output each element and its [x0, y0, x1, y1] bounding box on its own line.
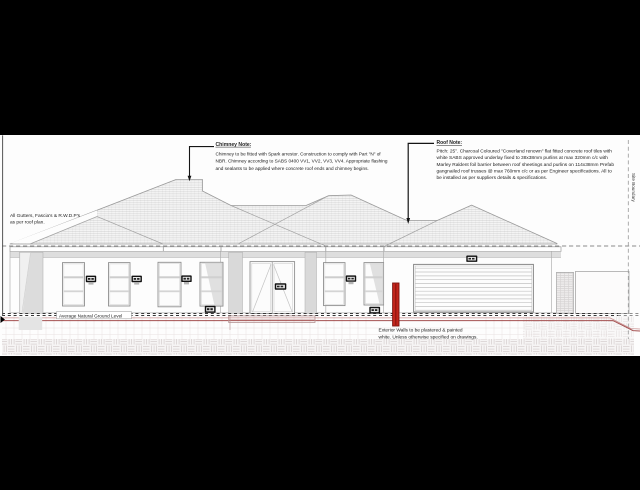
- svg-text:Exterior Walls to be plastered: Exterior Walls to be plastered & painted: [379, 327, 463, 333]
- svg-text:white SABS approved underlay f: white SABS approved underlay fixed to 38…: [437, 155, 609, 161]
- svg-text:Site Boundary: Site Boundary: [631, 173, 636, 203]
- svg-text:NBR. Chimney according to SABS: NBR. Chimney according to SABS 0400 VV1,…: [216, 159, 388, 164]
- svg-text:gangnailed roof trusses @ max: gangnailed roof trusses @ max 760mm c/c …: [437, 169, 613, 175]
- svg-text:All Gutters, Fascia's & R.W.D.: All Gutters, Fascia's & R.W.D.P's: [10, 213, 81, 219]
- svg-text:Chimney to be fitted with Spar: Chimney to be fitted with Spark arrestor…: [216, 151, 382, 156]
- svg-text:be installed as per suppliers: be installed as per suppliers details & …: [437, 175, 548, 181]
- svg-text:white. Unless otherwise specif: white. Unless otherwise specified on dra…: [379, 334, 478, 340]
- svg-text:Marley Raldent foil barrier be: Marley Raldent foil barrier between roof…: [437, 162, 615, 168]
- svg-text:as per roof plan.: as per roof plan.: [10, 220, 45, 226]
- svg-text:and sealants to be applied whe: and sealants to be applied where concret…: [216, 166, 369, 171]
- svg-text:Pitch: 25°. Charcoal Coloured: Pitch: 25°. Charcoal Coloured "Coverland…: [437, 148, 613, 154]
- svg-text:Average Natural Ground Level: Average Natural Ground Level: [59, 313, 122, 318]
